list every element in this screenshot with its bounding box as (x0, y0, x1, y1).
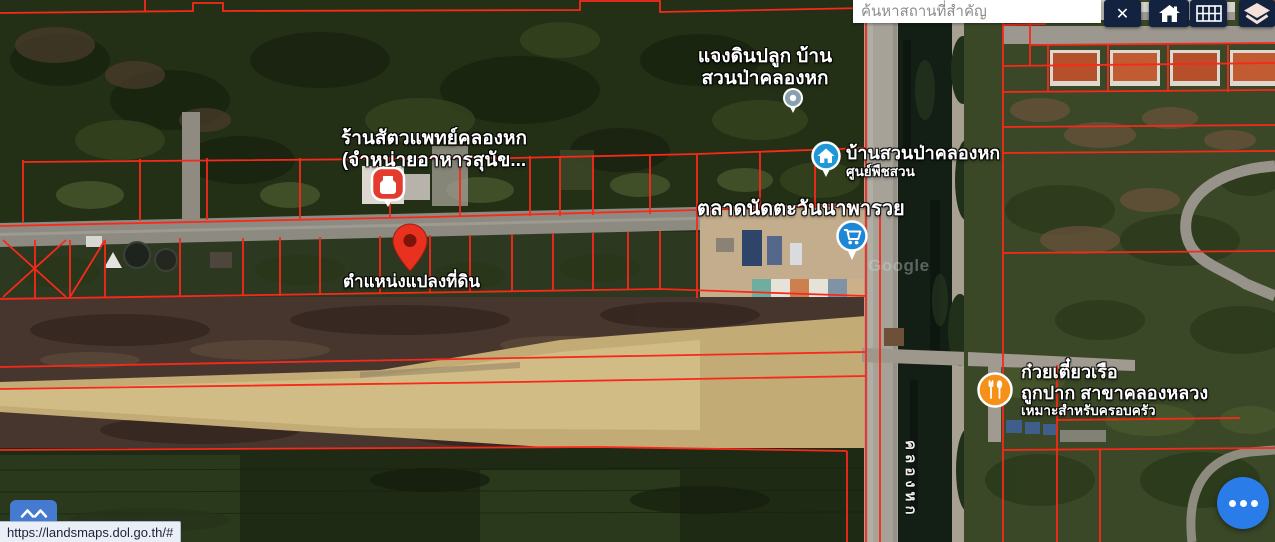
market-cart-marker[interactable] (834, 220, 870, 267)
vet-shop-marker[interactable] (370, 166, 406, 213)
home-button[interactable] (1149, 0, 1189, 27)
more-options-fab[interactable] (1217, 477, 1269, 529)
google-watermark: Google (868, 256, 930, 276)
label-garden-line2: สวนป่าคลองหก (698, 68, 832, 90)
label-vet-line2: (จำหน่ายอาหารสุนัข... (341, 150, 527, 172)
label-noodle-line2: ถูกปาก สาขาคลองหลวง (1021, 383, 1208, 404)
search-input[interactable] (853, 0, 1101, 23)
status-bar: https://landsmaps.dol.go.th/# (0, 521, 181, 542)
label-garden-line1: แจงดินปลูก บ้าน (698, 46, 832, 68)
satellite-map-canvas[interactable] (0, 0, 1275, 542)
label-noodle-line1: ก๋วยเตี๋ยวเรือ (1021, 362, 1208, 383)
label-noodle-line3: เหมาะสำหรับครอบครัว (1021, 403, 1208, 419)
home-icon (1159, 5, 1180, 22)
label-home-garden-line2: ศูนย์พืชสวน (846, 164, 1000, 180)
utensils-pin-icon (976, 371, 1014, 409)
parcel-location-pin (391, 223, 429, 278)
label-home-garden: บ้านสวนป่าคลองหก ศูนย์พืชสวน (846, 143, 1000, 179)
label-home-garden-line1: บ้านสวนป่าคลองหก (846, 143, 1000, 164)
label-vet-line1: ร้านสัตวแพทย์คลองหก (341, 128, 527, 150)
label-market: ตลาดนัดตะวันนาพารวย (697, 198, 905, 221)
grid-icon (1196, 5, 1222, 22)
layers-button[interactable] (1239, 0, 1275, 27)
ellipsis-icon (1229, 500, 1236, 507)
side-lane (182, 112, 200, 220)
canal-label-vertical: คลองหก (899, 440, 923, 519)
label-vet-shop: ร้านสัตวแพทย์คลองหก (จำหน่ายอาหารสุนัข..… (341, 128, 527, 172)
noodle-restaurant-marker[interactable] (976, 371, 1014, 414)
poi-dot-icon (782, 87, 804, 114)
landsmaps-app: แจงดินปลูก บ้าน สวนป่าคลองหก ร้านสัตวแพท… (0, 0, 1275, 542)
vet-pin-icon (370, 166, 406, 208)
house-pin-icon (810, 141, 842, 179)
grid-button[interactable] (1190, 0, 1227, 27)
home-garden-marker[interactable] (810, 141, 842, 184)
layers-icon (1244, 3, 1270, 25)
label-market-line1: ตลาดนัดตะวันนาพารวย (697, 198, 905, 221)
close-icon: ✕ (1116, 4, 1129, 24)
double-chevron-up-icon (19, 507, 49, 519)
clear-search-button[interactable]: ✕ (1104, 0, 1141, 27)
status-bar-url: https://landsmaps.dol.go.th/# (7, 525, 173, 540)
cart-pin-icon (834, 220, 870, 262)
label-garden-poi: แจงดินปลูก บ้าน สวนป่าคลองหก (698, 46, 832, 90)
teardrop-pin-icon (391, 223, 429, 273)
garden-poi-marker[interactable] (782, 87, 804, 119)
label-noodle-restaurant: ก๋วยเตี๋ยวเรือ ถูกปาก สาขาคลองหลวง เหมาะ… (1021, 362, 1208, 419)
